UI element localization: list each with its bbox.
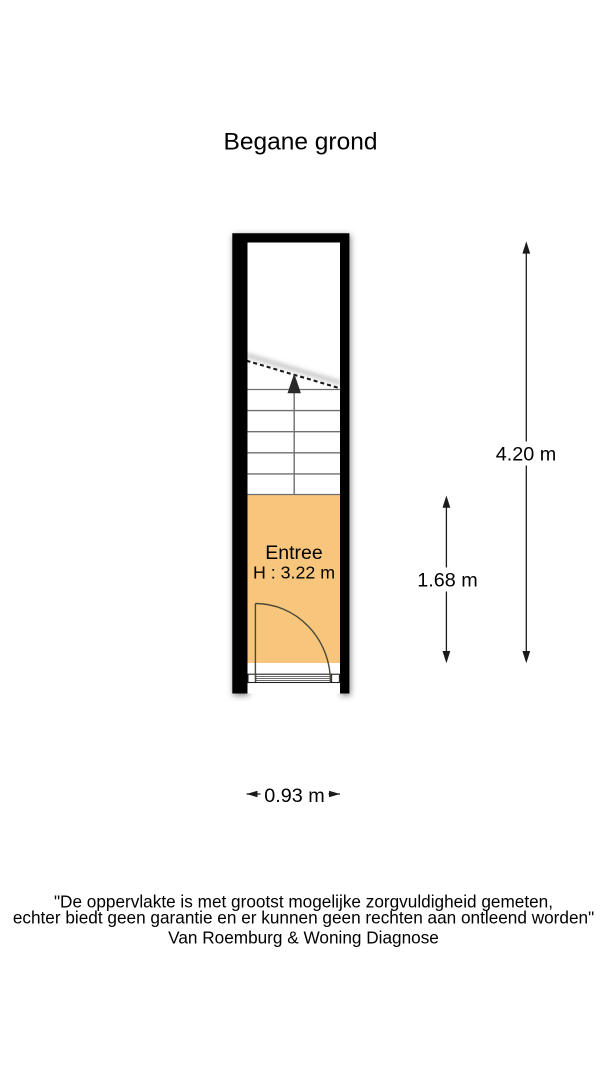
svg-text:1.68 m: 1.68 m: [417, 569, 477, 591]
svg-text:Van Roemburg & Woning Diagnose: Van Roemburg & Woning Diagnose: [168, 928, 439, 948]
svg-text:echter biedt geen garantie en: echter biedt geen garantie en er kunnen …: [13, 907, 594, 927]
svg-text:Entree: Entree: [265, 542, 322, 564]
svg-text:Begane grond: Begane grond: [224, 128, 378, 155]
svg-text:4.20 m: 4.20 m: [496, 443, 556, 465]
svg-text:H : 3.22 m: H : 3.22 m: [253, 563, 335, 583]
svg-text:0.93 m: 0.93 m: [264, 785, 324, 807]
